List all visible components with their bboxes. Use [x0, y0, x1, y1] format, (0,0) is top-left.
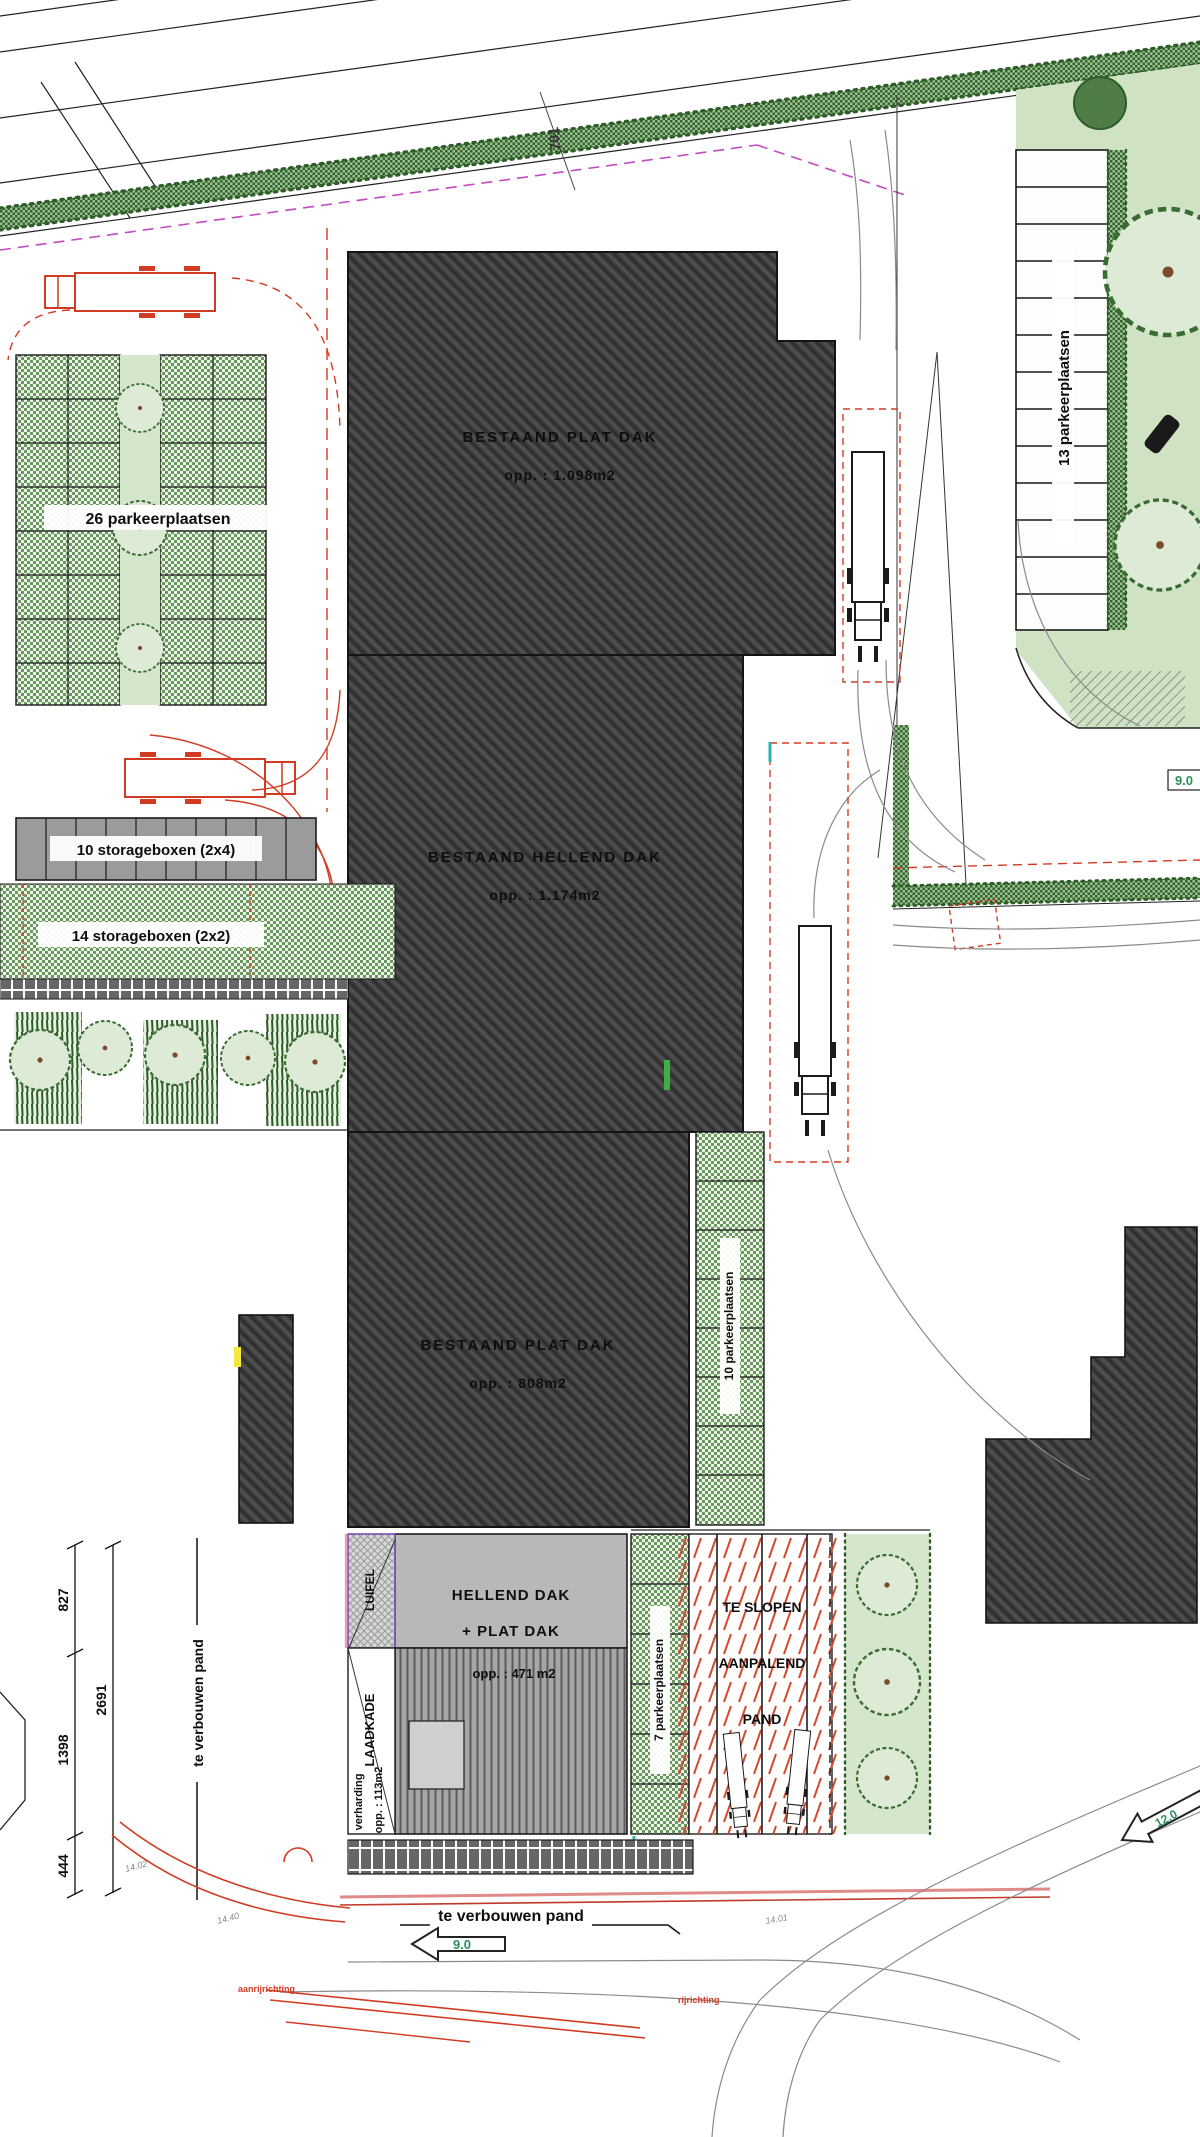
building3-area: opp. : 808m2 [469, 1375, 567, 1391]
cobble-strip-left [0, 979, 348, 999]
site-plan-canvas: 701 13 parkeerplaatsen 9.0 BESTAAND PLAT… [0, 0, 1200, 2137]
laadkade-label: LAADKADE [362, 1693, 377, 1766]
garden-band [0, 1012, 348, 1130]
verharding-line2: opp. : 113m2 [373, 1767, 385, 1834]
parking-middle-10: 10 parkeerplaatsen [696, 1132, 764, 1525]
luifel-label: LUIFEL [363, 1569, 377, 1611]
parcel-lines-right [878, 95, 966, 893]
parking-middle-label: 10 parkeerplaatsen [722, 1272, 736, 1381]
note-right: rijrichting [678, 1995, 720, 2005]
te-verbouwen-side: te verbouwen pand [190, 1538, 206, 1900]
note-left: aanrijrichting [238, 1984, 295, 1994]
building2-area: opp. : 1.174m2 [489, 887, 600, 903]
building-bestaand-hellend-dak: BESTAAND HELLEND DAK opp. : 1.174m2 [348, 655, 743, 1132]
parking-left-26: 26 parkeerplaatsen [16, 355, 272, 705]
building4-name1: HELLEND DAK [452, 1587, 571, 1604]
parking-south-label: 7 parkeerplaatsen [652, 1639, 666, 1741]
storage-row2-label: 14 storageboxen (2x2) [72, 928, 230, 945]
dim-2691: 2691 [93, 1684, 109, 1715]
road-width-marker-right: 9.0 [1168, 770, 1200, 790]
neighbor-building-southeast [986, 1227, 1197, 1623]
parking-left-label: 26 parkeerplaatsen [86, 511, 231, 528]
building-bestaand-plat-dak-2: BESTAAND PLAT DAK opp. : 808m2 [348, 1132, 689, 1527]
site-plan-svg: 701 13 parkeerplaatsen 9.0 BESTAAND PLAT… [0, 0, 1200, 2137]
truck-upper [843, 409, 900, 682]
yellow-marker [234, 1347, 241, 1367]
building1-name: BESTAAND PLAT DAK [462, 429, 657, 446]
demolish-line1: TE SLOPEN [722, 1599, 801, 1615]
te-slopen-area: TE SLOPEN AANPALEND PAND [676, 1534, 840, 1839]
level-a: 14.02 [124, 1858, 148, 1873]
te-verbouwen-side-label: te verbouwen pand [190, 1639, 206, 1767]
dim-1398: 1398 [55, 1734, 71, 1765]
road-width-bottom-label: 9.0 [453, 1937, 471, 1952]
level-c: 14.01 [765, 1912, 789, 1926]
building3-name: BESTAAND PLAT DAK [420, 1337, 615, 1354]
green-tick [664, 1060, 670, 1090]
building4-area: opp. : 471 m2 [472, 1666, 555, 1681]
building2-name: BESTAAND HELLEND DAK [428, 849, 662, 866]
hatched-ramp [1070, 671, 1185, 726]
building-bestaand-plat-dak-1: BESTAAND PLAT DAK opp. : 1.098m2 [348, 252, 835, 655]
verharding-line1: verharding [353, 1774, 365, 1831]
te-verbouwen-bottom-label: te verbouwen pand [438, 1908, 584, 1925]
street-number-label: 701 [545, 126, 563, 151]
demolish-line2: AANPALEND [719, 1655, 806, 1671]
dimension-lines: 827 1398 444 2691 [55, 1541, 121, 1898]
level-b: 14.40 [216, 1910, 240, 1925]
storage-row-2: 14 storageboxen (2x2) [0, 884, 395, 979]
dim-827: 827 [55, 1588, 71, 1612]
luifel-strip: LUIFEL [346, 1534, 395, 1650]
small-outbuilding [234, 1315, 293, 1523]
dim-444: 444 [55, 1854, 71, 1878]
cobble-strip-bottom [348, 1840, 693, 1874]
storage-row1-label: 10 storageboxen (2x4) [77, 842, 235, 859]
parking-right-13: 13 parkeerplaatsen [1016, 150, 1126, 630]
parking-right-label: 13 parkeerplaatsen [1056, 330, 1073, 466]
truck-middle [770, 743, 848, 1162]
building1-area: opp. : 1.098m2 [504, 467, 615, 483]
demolish-line3: PAND [743, 1711, 782, 1727]
building-hellend-plat-dak: HELLEND DAK + PLAT DAK opp. : 471 m2 [395, 1534, 627, 1834]
storage-row-1: 10 storageboxen (2x4) [16, 818, 316, 880]
road-width-right-label: 9.0 [1175, 773, 1193, 788]
building4-name2: + PLAT DAK [462, 1623, 560, 1640]
neighbor-edge-left [0, 1692, 25, 1830]
hedge-middle [893, 725, 1200, 950]
